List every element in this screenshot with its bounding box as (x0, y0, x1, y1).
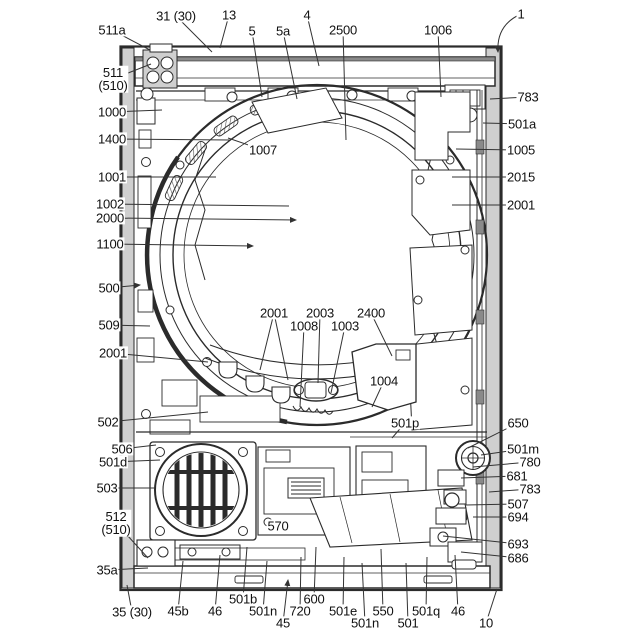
leader-line-1002 (110, 204, 289, 206)
leader-line-507 (466, 504, 518, 505)
leader-line-501e (343, 557, 344, 611)
cabinet-left-edge (122, 48, 134, 588)
leader-line-1003 (331, 326, 345, 393)
bottom-compartment (136, 432, 490, 569)
leader-line-10 (486, 589, 497, 623)
leader-line-1005 (456, 149, 521, 150)
hinge-block (143, 44, 177, 88)
leader-line-509 (109, 325, 150, 326)
leader-line-720 (300, 557, 301, 611)
top-panel (135, 57, 495, 86)
gasket-wave (293, 406, 333, 414)
cup-2 (246, 376, 264, 392)
cup-1 (219, 362, 237, 378)
leader-line-2003 (318, 313, 320, 383)
top-panel-edge (135, 57, 495, 61)
leader-line-501q (426, 557, 427, 611)
machine-drawing (0, 0, 640, 640)
rating-sticker (288, 478, 324, 498)
leader-line-1007 (228, 138, 263, 150)
leader-line-13 (220, 15, 229, 48)
cabinet-right-edge (486, 48, 500, 588)
cup-3 (272, 387, 290, 403)
top-left-plate (252, 88, 342, 133)
leader-line-2001 (274, 313, 288, 380)
patent-figure-page: 511a31 (30)1355a4250010061511 (510)10001… (0, 0, 640, 640)
leader-line-501p (392, 423, 405, 438)
